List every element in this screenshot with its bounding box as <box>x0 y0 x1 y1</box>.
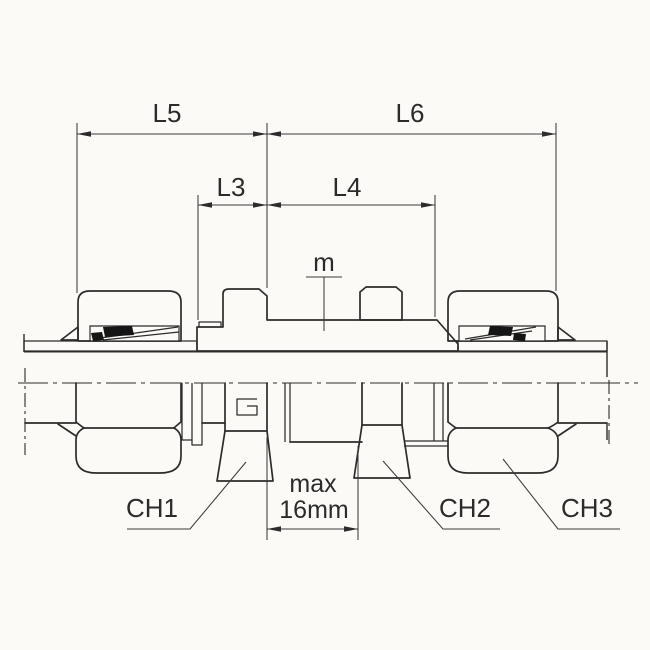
left-washer-exterior <box>182 383 202 445</box>
body-section <box>197 289 458 351</box>
labels: L5 L6 L3 L4 m max 16mm CH1 CH2 CH3 <box>126 98 613 524</box>
label-l4: L4 <box>333 172 362 202</box>
bulkhead-union-diagram: L5 L6 L3 L4 m max 16mm CH1 CH2 CH3 <box>0 0 650 650</box>
label-m: m <box>313 247 335 277</box>
fitting-technical-drawing: L5 L6 L3 L4 m max 16mm CH1 CH2 CH3 <box>0 0 650 650</box>
label-l5: L5 <box>153 98 182 128</box>
right-nut-exterior <box>448 383 576 473</box>
label-ch1: CH1 <box>126 493 178 523</box>
dimension-max-thickness <box>267 526 358 531</box>
label-l6: L6 <box>396 98 425 128</box>
section-view-top-half <box>24 287 607 440</box>
label-16mm: 16mm <box>279 496 348 524</box>
exterior-view-bottom-half <box>25 383 607 481</box>
left-nut-section <box>61 291 181 341</box>
thread-form-symbol <box>237 399 257 415</box>
dimension-l3-l4 <box>198 202 435 207</box>
right-cutting-ring-seal <box>488 326 513 336</box>
dimension-l5-l6 <box>77 131 556 136</box>
body-cylinder-exterior <box>285 383 448 446</box>
locknut-section <box>360 287 402 320</box>
label-max: max <box>289 470 337 498</box>
left-nut-exterior <box>58 383 181 473</box>
label-l3: L3 <box>217 172 246 202</box>
label-ch2: CH2 <box>439 493 491 523</box>
dimension-m-leader <box>306 277 342 331</box>
body-hex-exterior <box>217 383 273 481</box>
tube-section <box>24 334 607 440</box>
locknut-exterior <box>354 383 410 478</box>
right-nut-section <box>448 291 575 341</box>
label-ch3: CH3 <box>561 493 613 523</box>
